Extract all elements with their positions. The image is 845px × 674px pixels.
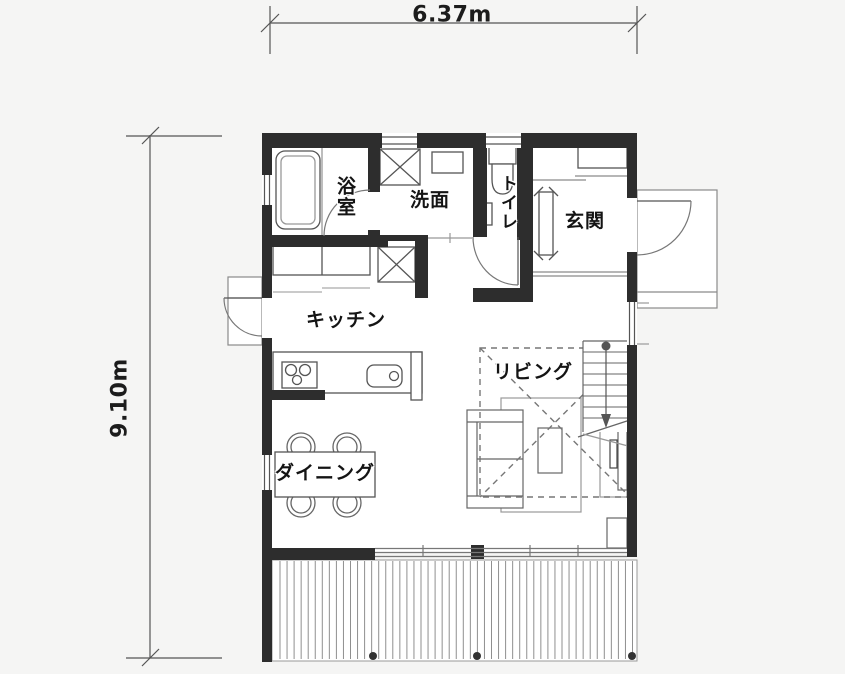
floor-plan-drawing: [0, 0, 845, 674]
fridge-nook-wall: [415, 235, 428, 298]
bathroom-fixtures: [276, 148, 322, 235]
refrigerator: [378, 247, 415, 282]
window-top-washroom: [382, 133, 417, 148]
toilet-tank: [489, 147, 516, 164]
washbasin: [432, 152, 463, 173]
dimension-width-label: 6.37m: [412, 3, 492, 28]
floor-plan-page: 6.37m 9.10m 浴室 洗面 トイレ 玄関 キッチン リビング ダイニング: [0, 0, 845, 674]
entrance-left-wall: [517, 133, 533, 240]
room-label-living: リビング: [493, 363, 573, 383]
wood-deck: [272, 560, 637, 661]
stove: [282, 362, 317, 388]
window-top-toilet: [486, 133, 521, 148]
kitchen-half-wall: [262, 390, 325, 400]
stairs: [578, 341, 630, 446]
storage-box: [607, 518, 627, 548]
sofa: [467, 410, 523, 508]
room-label-entrance: 玄関: [565, 212, 605, 232]
coffee-table: [538, 428, 562, 473]
bathroom-wall: [368, 133, 380, 192]
room-label-kitchen: キッチン: [306, 311, 386, 331]
washing-machine: [380, 149, 420, 185]
back-porch: [228, 277, 262, 345]
room-label-dining: ダイニング: [275, 464, 375, 484]
room-label-washroom: 洗面: [410, 191, 450, 211]
kitchen-sink: [367, 365, 402, 387]
dimension-line-left: [126, 127, 222, 666]
back-counter: [273, 245, 370, 275]
room-label-toilet: トイレ: [497, 175, 515, 232]
hall-wall: [473, 288, 533, 302]
room-label-bathroom: 浴室: [334, 176, 354, 218]
toilet-left-wall: [473, 133, 487, 237]
dimension-height-label: 9.10m: [108, 358, 133, 438]
bathroom-bottom-wall: [262, 235, 388, 247]
window-dining-left: [262, 455, 272, 490]
entrance-porch: [637, 190, 717, 308]
window-bathroom-left: [262, 175, 272, 205]
